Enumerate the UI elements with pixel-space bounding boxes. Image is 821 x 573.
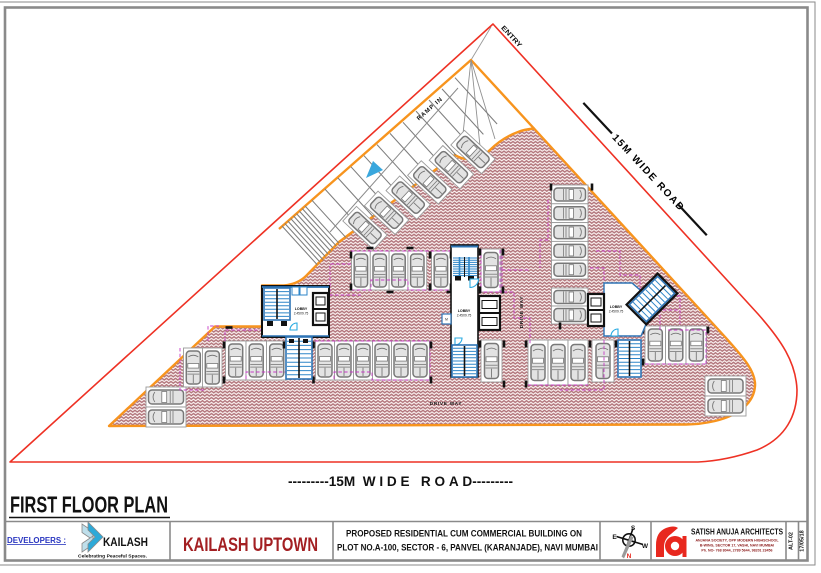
svg-text:2.45X9.75: 2.45X9.75: [609, 310, 624, 314]
svg-text:Celebrating Peaceful Spaces.: Celebrating Peaceful Spaces.: [78, 554, 147, 560]
svg-text:M: M: [445, 318, 448, 322]
svg-text:LOBBY: LOBBY: [295, 307, 308, 311]
svg-text:SATISH ANUJA ARCHITECTS: SATISH ANUJA ARCHITECTS: [691, 528, 784, 537]
svg-text:ALT-02: ALT-02: [789, 532, 795, 550]
svg-text:Ph. NO- 768 8044, 2789 5644, 9: Ph. NO- 768 8044, 2789 5644, 98201 23456: [701, 549, 772, 553]
svg-text:17/05/18: 17/05/18: [800, 530, 806, 551]
svg-text:---------15M W I D E R O A: ---------15M W I D E R O A D---------: [288, 473, 513, 489]
svg-text:PROPOSED RESIDENTIAL CUM COMME: PROPOSED RESIDENTIAL CUM COMMERCIAL BUIL…: [346, 529, 582, 539]
svg-text:DEVELOPERS :: DEVELOPERS :: [7, 536, 66, 545]
svg-text:DRIVE WAY: DRIVE WAY: [519, 296, 524, 329]
svg-text:KAILASH UPTOWN: KAILASH UPTOWN: [183, 534, 318, 556]
svg-text:2.45X9.75: 2.45X9.75: [294, 312, 309, 316]
svg-text:B-WING, SECTOR 17, VASHI, NAV: B-WING, SECTOR 17, VASHI, NAVI MUMBAI: [700, 544, 774, 548]
svg-text:LOBBY: LOBBY: [610, 305, 623, 309]
svg-text:W: W: [642, 543, 649, 550]
svg-text:DRIVE WAY: DRIVE WAY: [430, 401, 463, 406]
svg-text:PLOT NO.A-100, SECTOR - 6, PAN: PLOT NO.A-100, SECTOR - 6, PANVEL (KARAN…: [337, 543, 598, 553]
svg-text:KAILASH: KAILASH: [103, 535, 148, 549]
svg-text:E: E: [612, 534, 617, 541]
svg-text:N: N: [627, 553, 632, 560]
svg-text:2.45X9.75: 2.45X9.75: [457, 314, 472, 318]
svg-text:ANJANA SOCIETY, OPP MODERN HI: ANJANA SOCIETY, OPP MODERN HIGHSCHOOL: [695, 539, 779, 543]
svg-text:FIRST FLOOR PLAN: FIRST FLOOR PLAN: [10, 492, 168, 518]
svg-text:S: S: [631, 525, 636, 532]
svg-text:LOBBY: LOBBY: [458, 309, 471, 313]
